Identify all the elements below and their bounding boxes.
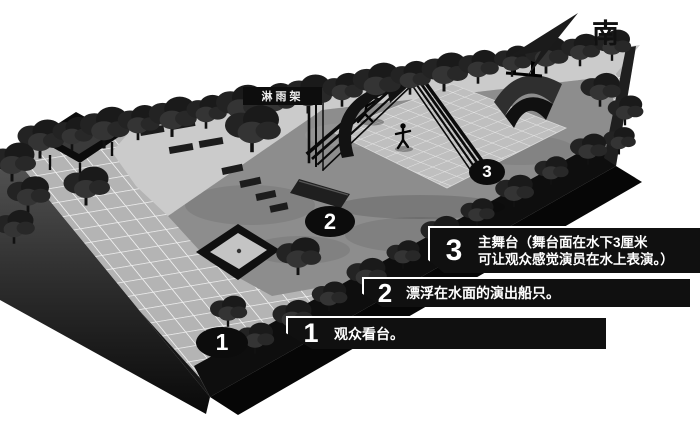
annotation-1-text: 观众看台。 xyxy=(334,324,404,344)
annotation-2-text: 漂浮在水面的演出船只。 xyxy=(406,283,560,303)
compass-south-label: 南 xyxy=(592,12,619,51)
diagram-canvas: 南 淋雨架 1 2 3 3 主舞台（舞台面在水下3厘米 可让观众感觉演员在水上表… xyxy=(0,0,700,422)
diagram-marker-2: 2 xyxy=(305,206,355,237)
annotation-bar-main-stage: 3 主舞台（舞台面在水下3厘米 可让观众感觉演员在水上表演。） xyxy=(428,226,700,273)
diagram-marker-1: 1 xyxy=(196,327,248,358)
marker-3-number: 3 xyxy=(482,162,491,182)
marker-2-number: 2 xyxy=(324,209,336,235)
marker-1-number: 1 xyxy=(216,329,229,356)
diagram-marker-3: 3 xyxy=(469,159,505,185)
annotation-3-number: 3 xyxy=(430,234,478,268)
annotation-3-text: 主舞台（舞台面在水下3厘米 可让观众感觉演员在水上表演。） xyxy=(478,234,674,268)
rain-frame-label: 淋雨架 xyxy=(243,87,322,105)
site-illustration xyxy=(0,0,700,422)
annotation-bar-stands: 1 观众看台。 xyxy=(286,316,606,349)
annotation-bar-boats: 2 漂浮在水面的演出船只。 xyxy=(362,277,690,307)
